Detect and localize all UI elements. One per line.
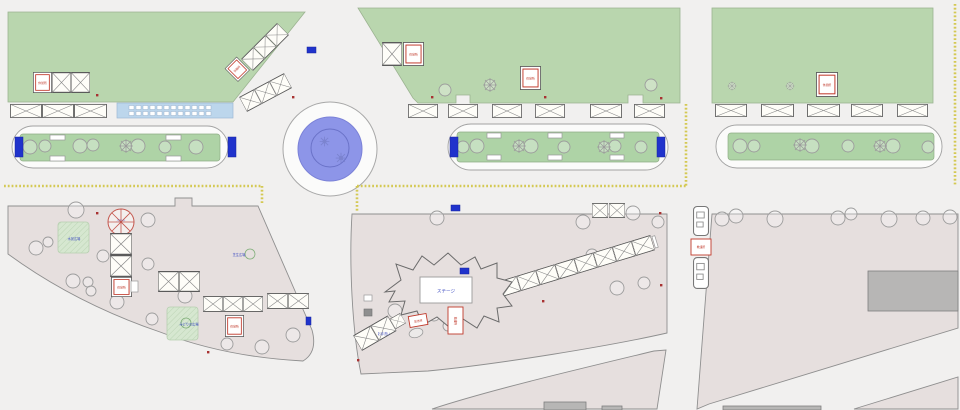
site-map: ステージ 休憩所 休憩所 休憩所 休憩所 休憩所 休憩所 休憩所 放送席 救護所… [0, 0, 960, 410]
bus-bay [117, 103, 233, 118]
tent [110, 256, 131, 277]
tent [761, 104, 793, 116]
tent [288, 293, 308, 308]
plaza-lawn-label: 芝生広場 [233, 252, 247, 257]
vehicle [694, 207, 709, 236]
tent [203, 296, 222, 311]
first-aid-label: 救護所 [697, 245, 706, 249]
tent [535, 104, 564, 117]
rest-tent-label: 休憩所 [823, 83, 832, 87]
tent [382, 43, 401, 66]
tent [807, 104, 839, 116]
sparkle-icon [728, 82, 737, 91]
site-map-page: ステージ 休憩所 休憩所 休憩所 休憩所 休憩所 休憩所 休憩所 放送席 救護所… [0, 0, 960, 410]
rest-tent-label: 休憩所 [526, 77, 535, 81]
tent [223, 296, 242, 311]
tent [110, 234, 131, 255]
tent [634, 104, 664, 117]
rest-tent-label: 休憩所 [230, 325, 239, 329]
plaza-green-label: みどりの広場 [179, 322, 199, 327]
tent [715, 104, 746, 116]
tent [158, 272, 178, 292]
restroom-label: お手洗い [378, 331, 391, 336]
parks [8, 8, 933, 103]
first-aid-label: 救護所 [454, 317, 458, 326]
fountain-plant-icon [320, 137, 330, 147]
tent [267, 293, 287, 308]
tent [897, 104, 927, 116]
fountain-pool [298, 117, 362, 181]
building-large [868, 271, 958, 311]
tent [592, 203, 608, 217]
rest-tent-label: 休憩所 [409, 53, 418, 57]
sparkle-icon [786, 82, 795, 91]
tent [42, 104, 73, 117]
tent [851, 104, 882, 116]
tent [408, 104, 437, 117]
tent [52, 73, 70, 93]
tent [609, 203, 625, 217]
tent [590, 104, 621, 117]
rest-tent-label: 休憩所 [117, 286, 126, 290]
tent [243, 296, 262, 311]
plaza-water-label: 水景広場 [68, 236, 82, 241]
rest-tent-label: 休憩所 [38, 81, 47, 85]
tent [492, 104, 521, 117]
fountain-plant-icon [336, 153, 347, 164]
tent [10, 104, 41, 117]
tent [448, 104, 477, 117]
vehicle [694, 258, 709, 289]
tent [179, 272, 199, 292]
tent [74, 104, 106, 117]
parasol-icon [108, 209, 134, 235]
fountain-roundabout [283, 102, 377, 196]
tent [71, 73, 89, 93]
